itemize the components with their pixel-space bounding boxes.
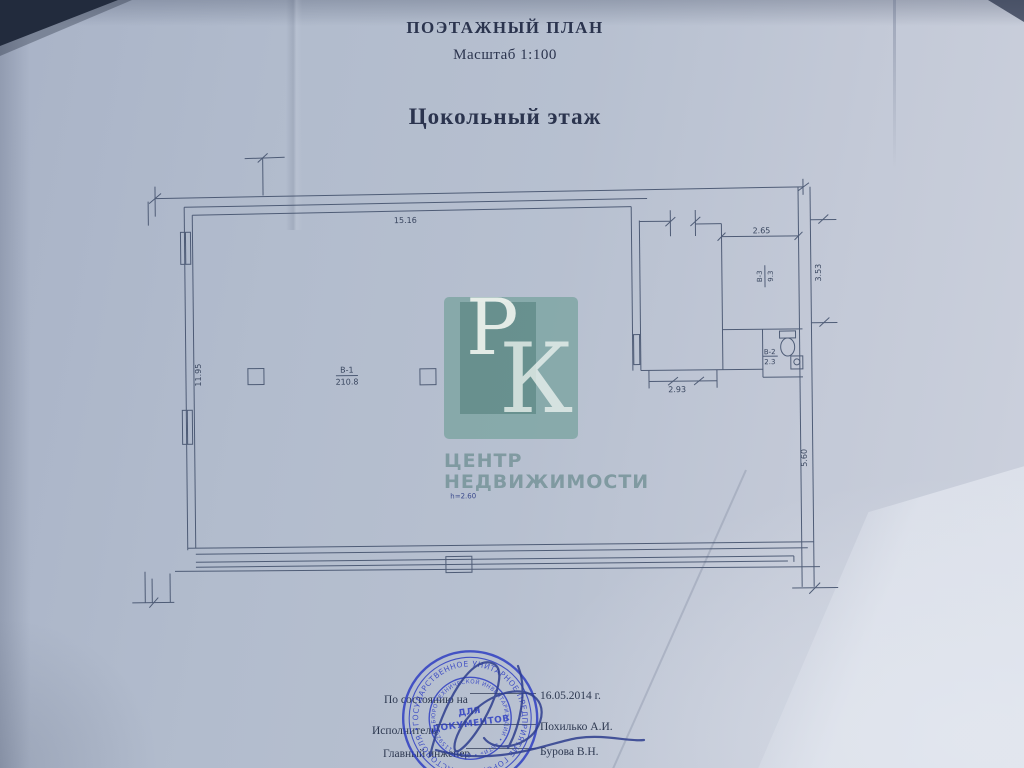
room1-area: 210.8 xyxy=(336,377,359,386)
room3-id: В-3 xyxy=(756,270,764,282)
dim-top-label: 15.16 xyxy=(394,216,417,225)
room2-area: 2.3 xyxy=(764,358,775,366)
scanned-floorplan-photo: ПОЭТАЖНЫЙ ПЛАН Масштаб 1:100 Цокольный э… xyxy=(0,0,1024,768)
dim-corridor-label: 2.93 xyxy=(668,385,686,394)
plan-labels: 15.16 2.93 2.65 11.95 3.53 5.60 В-1 210.… xyxy=(192,212,825,504)
height-note: h=2.60 xyxy=(450,492,476,500)
room2-id: В-2 xyxy=(764,348,776,356)
room3-area: 9.3 xyxy=(767,271,775,282)
dim-room3-height-label: 3.53 xyxy=(814,264,823,282)
dim-room3-width-label: 2.65 xyxy=(752,226,770,235)
room1-id: В-1 xyxy=(340,366,354,375)
signature xyxy=(400,630,680,768)
dim-left-label: 11.95 xyxy=(194,364,203,387)
dim-right-lower-label: 5.60 xyxy=(800,449,809,467)
plan-lines xyxy=(128,147,841,607)
